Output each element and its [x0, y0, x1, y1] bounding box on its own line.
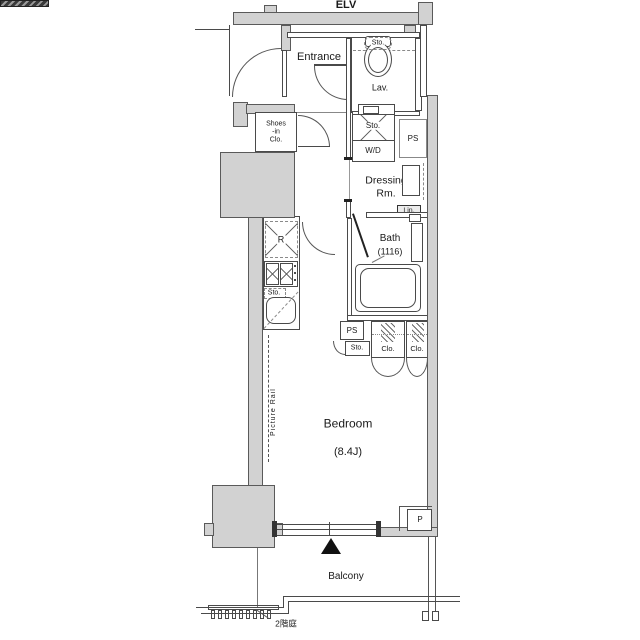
sto-mid-label: Sto. — [351, 344, 363, 351]
wd-label: W/D — [365, 147, 381, 155]
dressing-opening-line — [349, 160, 350, 200]
closet-right-label: Clo. — [410, 345, 423, 353]
closet-left-label: Clo. — [381, 345, 394, 353]
balcony-rail-foot-left — [422, 611, 429, 621]
corridor-wall-notch — [264, 5, 277, 13]
column-bottom-bump-left — [204, 523, 214, 536]
west-wall-stem — [248, 217, 263, 486]
porch-wall-stub — [281, 25, 291, 51]
sto-mid-door-arc — [333, 341, 345, 355]
entrance-door-arc — [232, 48, 281, 97]
picture-rail-label: Picture Rail — [270, 372, 277, 436]
closet-right-rod-line — [407, 334, 427, 335]
dressing-label-1: Dressing — [365, 175, 406, 186]
hall-door-arc — [302, 222, 335, 255]
hedge-tooth — [225, 610, 229, 619]
wd-divider — [352, 140, 395, 141]
closet-left-rod-hatch — [381, 323, 395, 342]
genkan-step-line — [297, 112, 347, 113]
balcony-label: Balcony — [328, 572, 364, 583]
vanity-dashed-edge — [423, 163, 424, 200]
picture-rail-line — [268, 335, 269, 462]
closet-left-fold-arc-1 — [371, 358, 388, 377]
shoes-closet-label-3: Clo. — [270, 136, 282, 143]
toilet-bowl-inner — [368, 47, 388, 73]
hedge-tooth — [218, 610, 222, 619]
shoes-closet-label-1: Shoes — [266, 120, 286, 127]
hedge-tooth — [253, 610, 257, 619]
hall-east-wall-upper — [346, 38, 351, 160]
corridor-wall-endcap — [418, 2, 433, 25]
stove-knob-3 — [294, 279, 296, 281]
closet-left-fold-arc-2 — [388, 358, 405, 377]
bedroom-size-label: (8.4J) — [334, 447, 362, 459]
kitchen-sto-label: Sto. — [267, 289, 281, 296]
bedroom-label: Bedroom — [324, 418, 373, 431]
balcony-window-mid-rail — [276, 529, 378, 530]
hall-east-wall-lower — [346, 200, 351, 218]
entrance-inner-door-arc — [314, 66, 348, 100]
east-wall-upper — [420, 25, 427, 97]
balcony-rail-foot-right — [432, 611, 439, 621]
bath-west-wall — [347, 218, 352, 320]
lav-sto-label: Sto. — [371, 39, 385, 46]
closet-right-rod-hatch — [412, 323, 424, 342]
ps-mid-label: PS — [347, 327, 358, 335]
north-wall — [287, 32, 420, 38]
vanity-fixture — [402, 165, 420, 196]
bath-counter — [411, 223, 423, 262]
stove-burner-right — [280, 263, 293, 285]
east-wall — [427, 95, 438, 537]
closet-right-fold-arc-1 — [406, 358, 417, 377]
site-boundary-line — [195, 29, 229, 30]
column-top — [220, 152, 295, 218]
shoes-closet-door-arc — [298, 115, 330, 147]
window-post-right — [376, 521, 381, 537]
stove-knob-2 — [294, 272, 296, 274]
entrance-label: Entrance — [297, 52, 341, 64]
stove-knob-1 — [294, 265, 296, 267]
wd-sto-label: Sto. — [365, 122, 381, 130]
hedge-tooth — [246, 610, 250, 619]
porch-right-wall — [282, 50, 287, 97]
balcony-edge-inner-h — [288, 601, 460, 602]
fridge-label: R — [277, 235, 286, 244]
bath-door-line — [352, 213, 369, 257]
dressing-label-2: Rm. — [376, 188, 395, 199]
lav-label: Lav. — [372, 83, 388, 92]
lav-sink-icon — [363, 106, 379, 114]
column-bottom — [212, 485, 275, 548]
stove-burner-left — [266, 263, 279, 285]
shoes-closet-door-leaf — [298, 146, 330, 147]
closet-left-rod-line — [372, 334, 404, 335]
balcony-window — [276, 524, 378, 536]
bath-size-label: (1116) — [378, 247, 403, 256]
wall-cap-a — [344, 157, 352, 160]
window-post-left — [272, 521, 277, 537]
floorplan: ELV Entrance Sto. Lav. Shoes -in Clo. St… — [0, 0, 640, 640]
window-center-tick — [329, 522, 330, 536]
direction-triangle-icon — [321, 538, 341, 554]
balcony-divider-line — [257, 548, 258, 608]
corridor-wall — [233, 12, 433, 25]
bath-counter-small — [409, 214, 421, 222]
hedge-tooth — [239, 610, 243, 619]
p-label: P — [417, 516, 422, 524]
bathtub-inner — [360, 268, 416, 308]
hedge-tooth — [232, 610, 236, 619]
garden-label: 2階庭 — [275, 620, 297, 629]
wall-cap-b — [344, 199, 352, 202]
porch-left-line — [229, 25, 230, 96]
hedge-tooth — [211, 610, 215, 619]
elv-label: ELV — [336, 0, 357, 12]
shoes-closet-label-2: -in — [272, 128, 280, 135]
entrance-door-leaf — [0, 0, 49, 7]
ps-top-label: PS — [408, 135, 419, 143]
bath-label: Bath — [380, 234, 401, 245]
balcony-edge-outer-h — [283, 596, 460, 597]
